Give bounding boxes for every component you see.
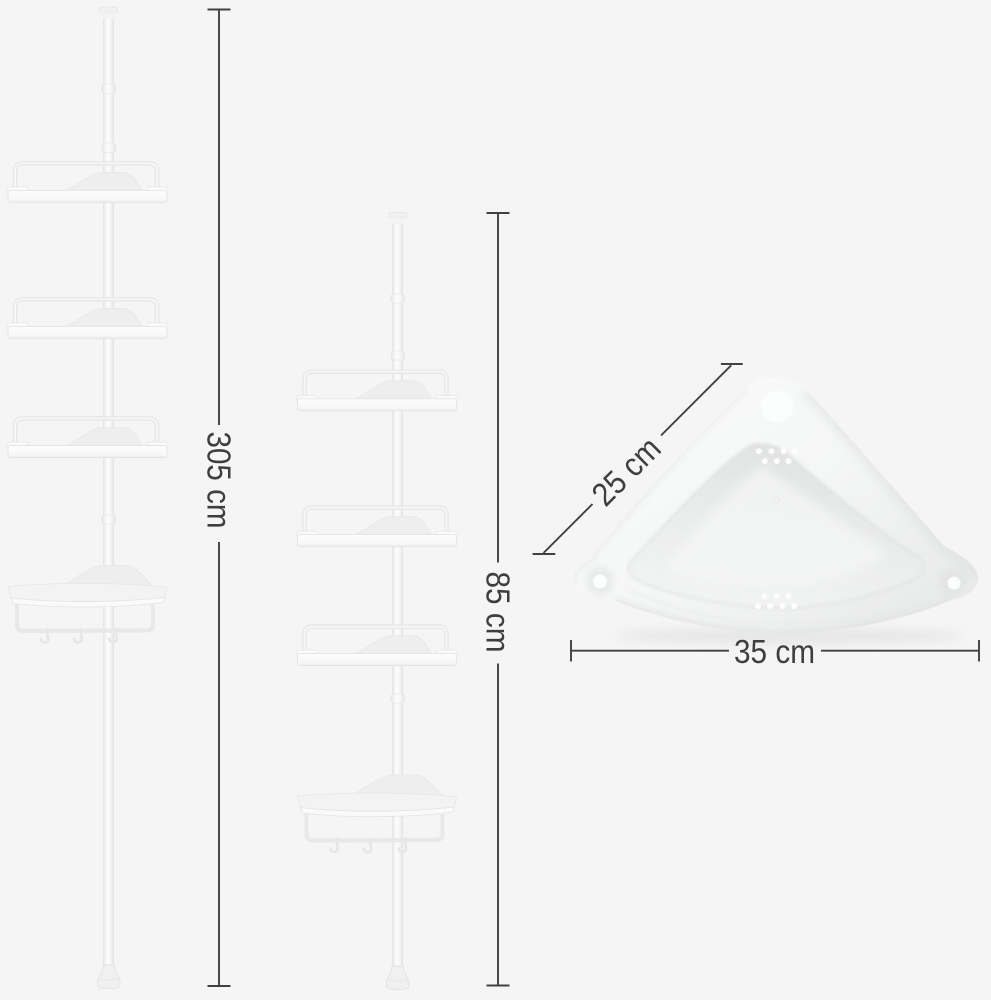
svg-text:305 cm: 305 cm	[200, 432, 237, 529]
svg-text:35 cm: 35 cm	[734, 633, 815, 670]
svg-text:85 cm: 85 cm	[479, 572, 516, 653]
